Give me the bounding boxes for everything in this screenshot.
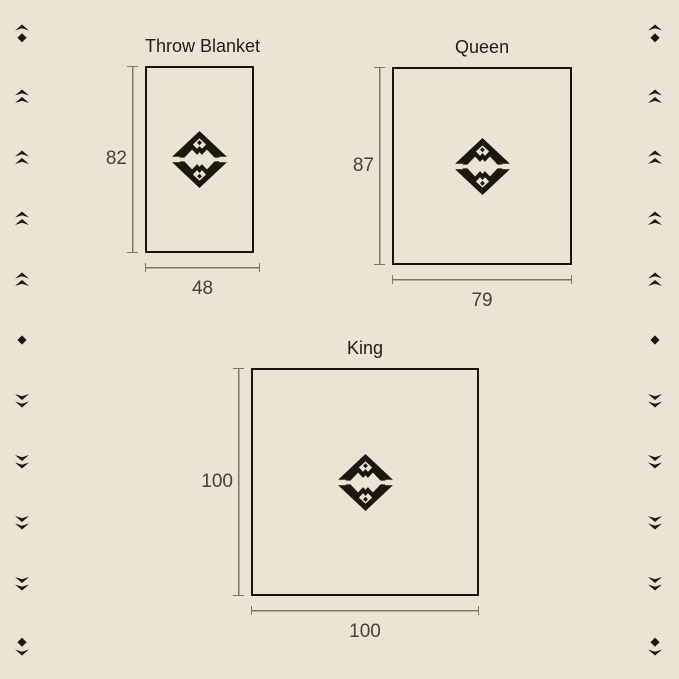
double-chevron-up-icon: [15, 89, 29, 104]
horizontal-dimension-line: [145, 263, 260, 272]
height-dimension-label: 87: [340, 155, 374, 177]
double-chevron-up-icon: [648, 272, 662, 287]
horizontal-dimension-line: [392, 275, 572, 284]
width-dimension-label: 100: [251, 621, 479, 643]
blanket-rectangle-king: [251, 368, 479, 596]
diamond-chevron-down-icon: [15, 637, 29, 656]
diamond-icon: [648, 333, 662, 347]
diagram-throw-blanket: Throw Blanket 82 48: [93, 36, 260, 300]
double-chevron-down-icon: [15, 393, 29, 408]
diamond-chevron-down-icon: [648, 637, 662, 656]
double-chevron-up-icon: [648, 211, 662, 226]
double-chevron-down-icon: [648, 515, 662, 530]
diamond-icon: [15, 333, 29, 347]
width-dimension-label: 48: [145, 278, 260, 300]
ornament-column-left: [15, 24, 29, 656]
brand-logo-icon: [455, 138, 510, 195]
vertical-dimension-line: [127, 66, 138, 253]
height-dimension-label: 100: [199, 471, 233, 493]
diagram-title: Throw Blanket: [145, 36, 260, 57]
diagram-queen: Queen 87 79: [340, 37, 572, 312]
diagram-title: Queen: [392, 37, 572, 58]
double-chevron-down-icon: [15, 515, 29, 530]
ornament-column-right: [648, 24, 662, 656]
vertical-dimension-line: [233, 368, 244, 596]
height-dimension-label: 82: [93, 148, 127, 170]
brand-logo-icon: [338, 454, 393, 511]
double-chevron-up-icon: [15, 150, 29, 165]
vertical-dimension-line: [374, 67, 385, 265]
diamond-chevron-up-icon: [15, 24, 29, 43]
width-dimension-label: 79: [392, 290, 572, 312]
size-guide-canvas: Throw Blanket 82 48 Queen 87 79 King 100…: [0, 0, 679, 679]
double-chevron-up-icon: [648, 89, 662, 104]
double-chevron-down-icon: [15, 576, 29, 591]
diagram-title: King: [251, 338, 479, 359]
double-chevron-down-icon: [648, 393, 662, 408]
blanket-rectangle-queen: [392, 67, 572, 265]
double-chevron-up-icon: [15, 272, 29, 287]
diamond-chevron-up-icon: [648, 24, 662, 43]
double-chevron-down-icon: [648, 576, 662, 591]
brand-logo-icon: [172, 131, 227, 188]
blanket-rectangle-throw: [145, 66, 254, 253]
double-chevron-down-icon: [648, 454, 662, 469]
double-chevron-up-icon: [648, 150, 662, 165]
double-chevron-down-icon: [15, 454, 29, 469]
horizontal-dimension-line: [251, 606, 479, 615]
diagram-king: King 100 100: [199, 338, 479, 643]
double-chevron-up-icon: [15, 211, 29, 226]
